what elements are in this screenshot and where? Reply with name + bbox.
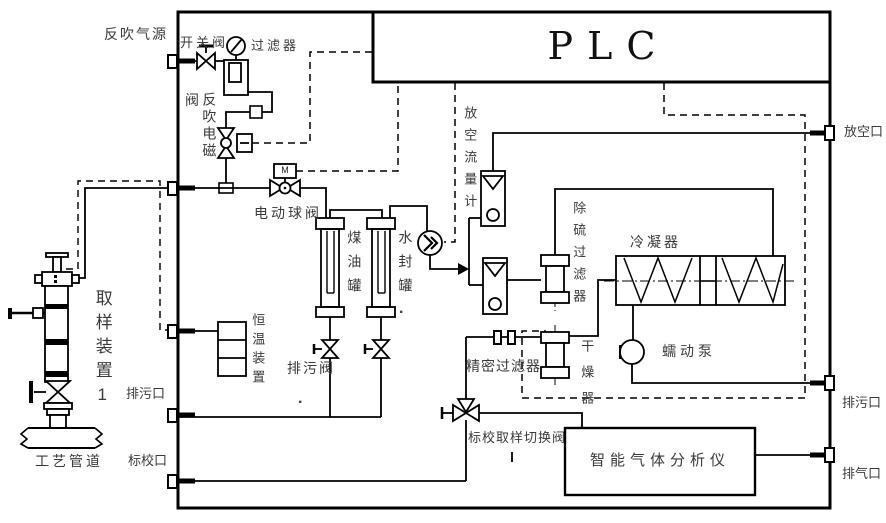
plc-label: PLC (373, 12, 830, 82)
vent-flowmeter-label: 放空流量计 (462, 106, 476, 216)
port-drain-right (810, 376, 834, 390)
exhaust-port-label: 排气口 (842, 467, 881, 481)
filter-label: 过滤器 (251, 39, 299, 53)
port-thermostat (168, 325, 195, 338)
condenser-symbol (569, 256, 797, 340)
port-sample-inlet (168, 182, 195, 195)
vent-rotameter-symbol (481, 133, 810, 226)
port-exhaust (810, 448, 834, 462)
calibration-switch-valve-label: 标校取样切换阀 (468, 431, 566, 445)
dryer-label: 干燥器 (579, 339, 593, 417)
sample-bundle-lines (66, 181, 168, 330)
thermostat-device-label: 恒温装置 (250, 313, 264, 389)
electric-ball-valve-label: 电动球阀 (254, 206, 322, 221)
punctuation-dot: . (298, 390, 302, 408)
sampling-device-symbol (8, 253, 79, 428)
water-seal-tank-symbol (367, 218, 395, 317)
condenser-label: 冷凝器 (630, 235, 681, 250)
plc-control-lines (252, 52, 805, 398)
drain-port-left-label: 排污口 (126, 387, 165, 401)
sampling-device-label: 取样装置1 (92, 289, 111, 411)
backflush-solenoid-valve-symbol (218, 128, 252, 193)
sample-rotameter-symbol (483, 258, 541, 314)
thermostat-device-symbol (195, 322, 246, 376)
switch-valve-label: 开关阀 (180, 36, 228, 50)
port-drain-left (168, 409, 195, 422)
peristaltic-pump-label: 蠕动泵 (662, 344, 716, 359)
tank-drain-valves (179, 317, 389, 417)
backflush-filter-symbol (224, 60, 272, 128)
vent-port-label: 放空口 (844, 125, 883, 139)
desulfurization-filter-label: 除硫过滤器 (571, 201, 585, 311)
drain-valve-label: 排污阀 (287, 361, 335, 376)
precision-filter-label: 精密过滤器 (466, 359, 541, 374)
diagram-canvas: PLC 反吹气源 开关阀 过滤器 阀 反吹电磁 电动球阀 M 煤油罐 水封罐 .… (0, 0, 886, 523)
process-pipe-symbol (21, 428, 102, 448)
pressure-gauge-icon (227, 37, 245, 60)
solenoid-valve-char-label: 阀 (185, 93, 199, 108)
calibration-port-label: 标校口 (128, 454, 167, 468)
water-seal-tank-label: 水封罐 (397, 230, 412, 302)
sample-pump-symbol (418, 231, 469, 275)
process-pipe-label: 工艺管道 (35, 454, 103, 469)
port-vent (810, 126, 834, 140)
punctuation-dot: . (399, 300, 403, 318)
flow-split-piping (469, 218, 483, 285)
drain-port-right-label: 排污口 (842, 396, 881, 410)
motor-actuator-label: M (274, 164, 296, 178)
kerosene-tank-label: 煤油罐 (346, 230, 361, 302)
backflush-solenoid-label: 反吹电磁 (201, 92, 216, 160)
port-backflush-inlet (168, 55, 195, 68)
gas-analyzer-label: 智能气体分析仪 (565, 428, 755, 495)
dryer-symbol (466, 325, 569, 385)
kerosene-tank-symbol (316, 218, 344, 317)
backflush-gas-source-label: 反吹气源 (104, 27, 168, 42)
